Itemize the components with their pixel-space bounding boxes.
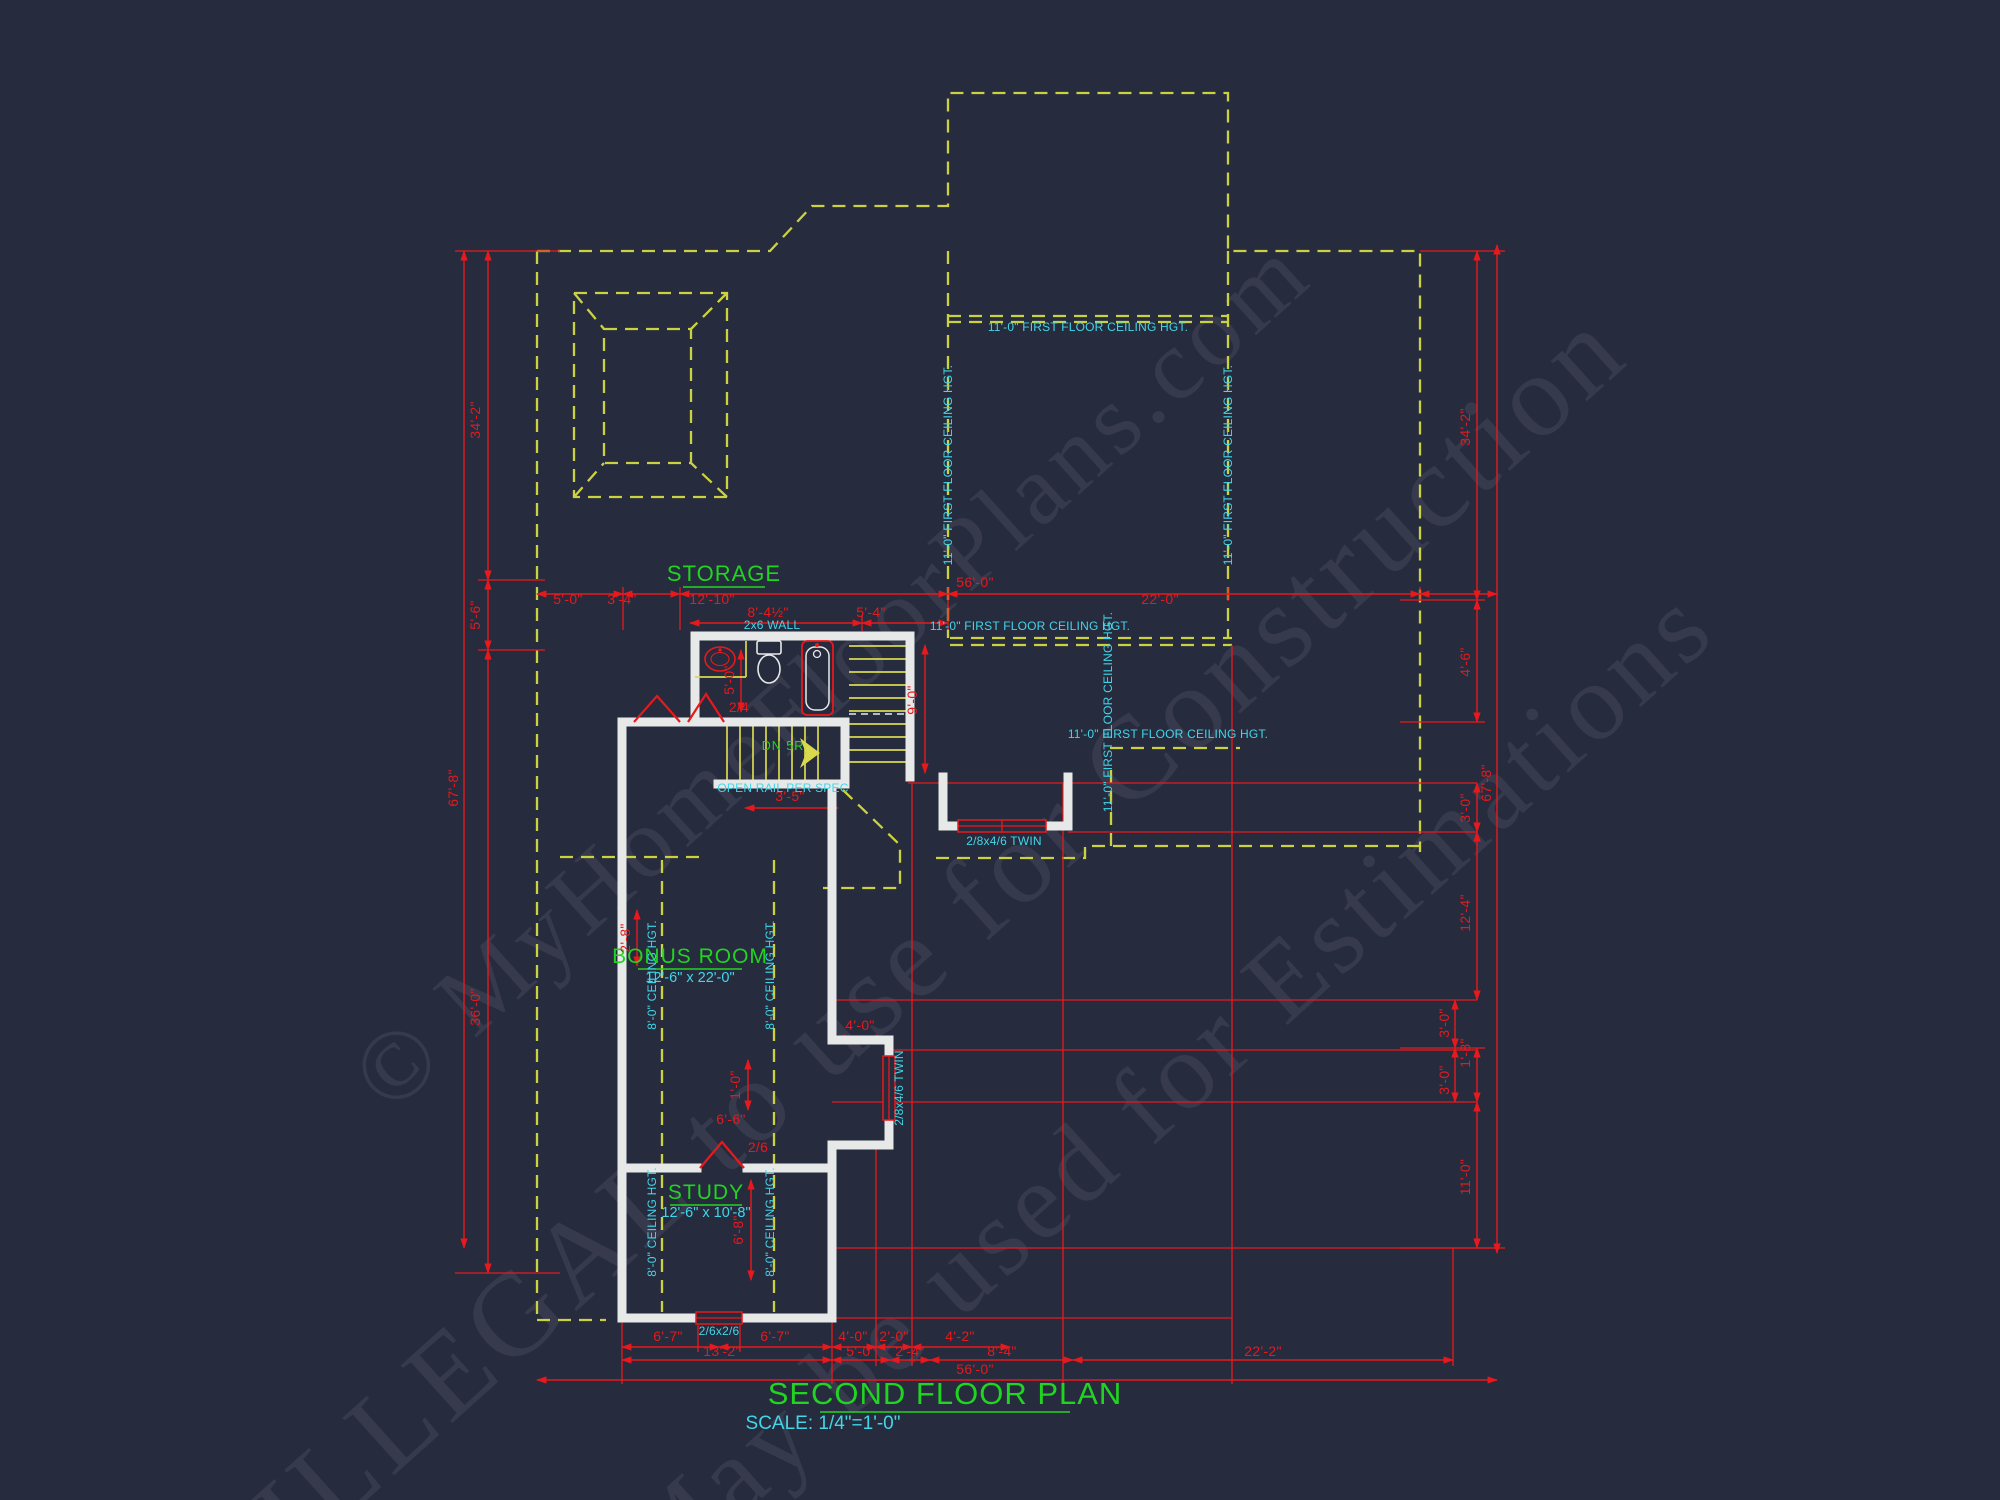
dimension-label: 2/4: [729, 699, 749, 715]
dimension-label: 4'-2": [945, 1328, 974, 1344]
annotation-label: 11'-0" FIRST FLOOR CEILING HGT.: [1068, 727, 1268, 741]
annotation-label: 8'-0" CEILING HGT.: [763, 920, 777, 1030]
bonus-room-label: BONUS ROOM: [612, 945, 768, 968]
dimension-label: 13'-2": [703, 1343, 740, 1359]
dimension-label: 5'-0": [721, 665, 737, 694]
dimension-label: 4'-0": [838, 1328, 867, 1344]
dimension-label: 36'-0": [467, 988, 483, 1025]
dimension-label: 22'-0": [1141, 591, 1178, 607]
storage-room-label: STORAGE: [667, 561, 781, 586]
dimension-label: 6'-8": [730, 1215, 746, 1244]
annotation-label: 11'-0" FIRST FLOOR CEILING HGT.: [988, 320, 1188, 334]
dimension-label: 56'-0": [956, 1361, 993, 1377]
dimension-label: 11'-0": [1457, 1159, 1473, 1195]
annotation-label: 11'-0" FIRST FLOOR CEILING HGT.: [1101, 612, 1115, 812]
annotation-label: 8'-0" CEILING HGT.: [645, 920, 659, 1030]
dimension-label: 3'-0": [1457, 793, 1473, 822]
dimension-label: 5'-4": [856, 604, 885, 620]
drawing-title: SECOND FLOOR PLAN: [768, 1376, 1123, 1411]
dimension-label: 2'-0": [879, 1328, 908, 1344]
annotation-label: 2x6 WALL: [744, 618, 801, 632]
annotation-label: OPEN RAIL PER SPEC: [717, 781, 848, 795]
dimension-label: 2'-4": [895, 1343, 924, 1359]
stair-down-label: DN 5R: [762, 739, 805, 753]
annotation-label: 2/6x2/6: [699, 1324, 740, 1338]
tub-faucet-icon: [815, 643, 819, 647]
annotation-label: 8'-0" CEILING HGT.: [645, 1167, 659, 1277]
study-room-label: STUDY: [668, 1181, 744, 1204]
floor-plan-svg: © MyHomeFloorPlans.com ILLEGAL to use fo…: [0, 0, 2000, 1500]
sink-faucet-icon: [718, 648, 721, 651]
dimension-label: 8'-4": [987, 1343, 1016, 1359]
annotation-label: 11'-0" FIRST FLOOR CEILING HGT.: [941, 365, 955, 565]
dimension-label: 3'-0": [1436, 1065, 1452, 1094]
dimension-label: 6'-6": [716, 1111, 745, 1127]
dimension-label: 1'-8": [1457, 1038, 1473, 1067]
dimension-label: 4'-0": [845, 1017, 874, 1033]
dimension-label: 5'-6": [467, 600, 483, 629]
dimension-label: 9'-0": [904, 685, 920, 714]
annotation-label: 8'-0" CEILING HGT.: [763, 1167, 777, 1277]
dimension-label: 67'-8": [1478, 764, 1494, 801]
annotation-label: 2/8x4/6 TWIN: [966, 834, 1042, 848]
dimension-label: 3'-0": [1436, 1008, 1452, 1037]
dimension-label: 5'-0": [846, 1343, 875, 1359]
dimension-label: 56'-0": [956, 574, 993, 590]
dimension-label: 3'-4": [607, 591, 636, 607]
dimension-label: 1'-0": [727, 1070, 743, 1099]
annotation-label: 2/8x4/6 TWIN: [892, 1050, 906, 1126]
dimension-label: 12'-4": [1457, 894, 1473, 931]
dimension-label: 22'-2": [1244, 1343, 1281, 1359]
dimension-label: 2'-8": [617, 923, 633, 952]
dimension-label: 6'-7": [760, 1328, 789, 1344]
dimension-label: 34'-2": [467, 401, 483, 438]
dimension-label: 34'-2": [1457, 408, 1473, 445]
dimension-label: 67'-8": [445, 769, 461, 806]
dimension-label: 5'-0": [553, 591, 582, 607]
dimension-label: 2/6: [748, 1139, 768, 1155]
dimension-label: 4'-6": [1457, 647, 1473, 676]
blueprint-canvas: © MyHomeFloorPlans.com ILLEGAL to use fo…: [0, 0, 2000, 1500]
drawing-scale: SCALE: 1/4"=1'-0": [746, 1413, 901, 1434]
dimension-label: 6'-7": [653, 1328, 682, 1344]
dimension-label: 12'-10": [689, 591, 735, 607]
annotation-label: 11'-0" FIRST FLOOR CEILING HGT.: [1221, 365, 1235, 565]
